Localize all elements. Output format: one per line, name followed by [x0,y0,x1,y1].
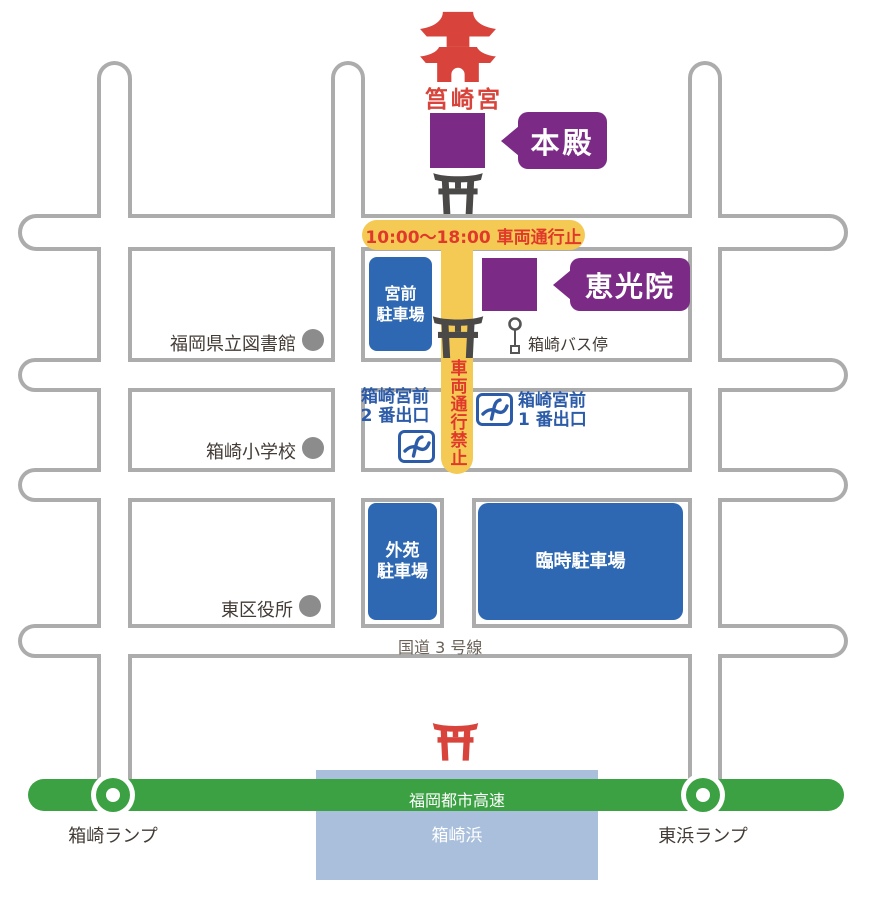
school-dot [302,437,324,459]
beach-label: 箱崎浜 [316,821,598,846]
ward-office-dot [299,595,321,617]
expressway-label: 福岡都市高速 [316,787,598,811]
closure-time-banner: 10:00〜18:00 車両通行止 [362,220,585,250]
ekoin-label: 恵光院 [585,265,675,305]
ekoin-building [482,258,537,311]
route3-label: 国道 3 号線 [398,634,482,658]
ekoin-callout: 恵光院 [570,258,690,311]
shrine-name: 筥崎宮 [418,80,510,114]
library-dot [302,329,324,351]
torii-icon-top [431,168,485,214]
gaien-parking: 外苑 駐車場 [368,503,437,620]
miyamae-parking: 宮前 駐車場 [369,257,432,351]
subway-logo-icon-exit2 [398,430,435,463]
honden-callout: 本殿 [518,112,607,169]
torii-icon-beach [432,716,479,763]
subway-exit1-label: 箱崎宮前 1 番出口 [518,392,587,430]
library-label: 福岡県立図書館 [150,330,296,356]
school-label: 箱崎小学校 [160,438,296,464]
bus-stop-label: 箱崎バス停 [528,331,608,355]
higashihama-ramp-label: 東浜ランプ [653,822,753,848]
honden-label: 本殿 [530,120,594,162]
torii-icon-middle [431,311,485,358]
ward-office-label: 東区役所 [157,596,293,622]
closure-vertical-label: 車両通行禁止 [440,352,474,474]
higashihama-ramp-marker [681,773,725,817]
hakozaki-shrine-access-map: 10:00〜18:00 車両通行止 車両通行禁止 筥崎宮 本殿 恵光院 宮前 駐… [0,0,872,904]
subway-exit2-label: 箱崎宮前 2 番出口 [354,388,436,426]
hakozaki-ramp-label: 箱崎ランプ [60,822,166,848]
bus-stop-icon [506,317,524,355]
honden-building [430,113,485,168]
shrine-gate-icon [418,10,498,82]
rinji-parking: 臨時駐車場 [478,503,683,620]
hakozaki-ramp-marker [91,773,135,817]
subway-logo-icon-exit1 [476,393,513,426]
